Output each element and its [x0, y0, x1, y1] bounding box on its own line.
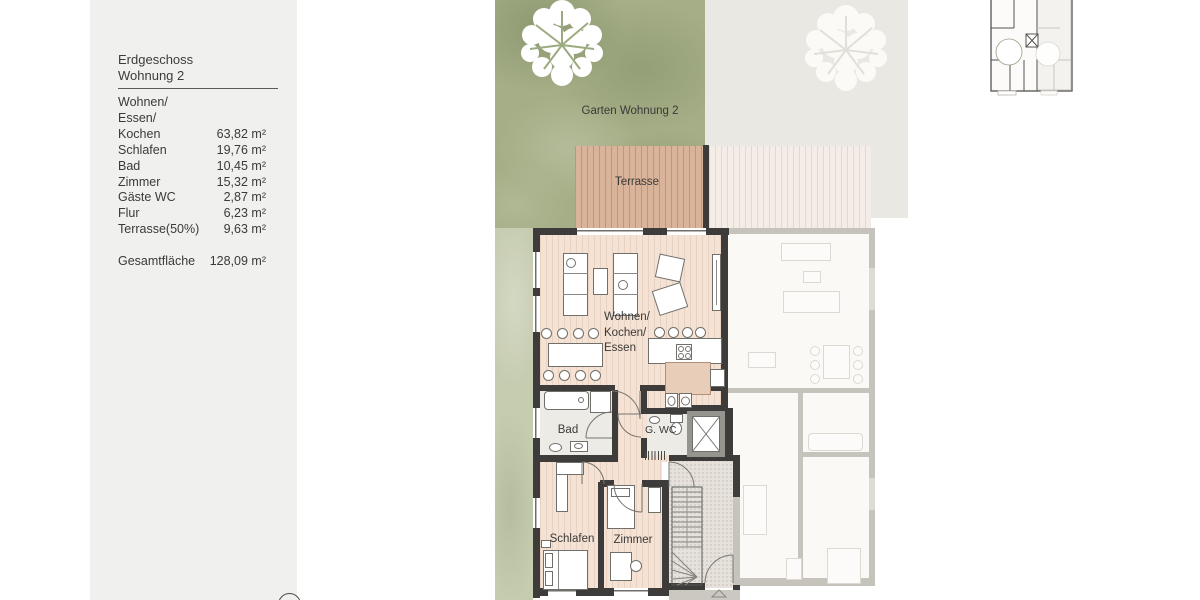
living-room-label: Wohnen/ Kochen/ Essen — [604, 310, 650, 357]
building-overview-minimap — [986, 0, 1078, 97]
schlafen-label: Schlafen — [542, 533, 602, 545]
floorplan-page: Erdgeschoss Wohnung 2 Wohnen/ Essen/ Koc… — [0, 0, 1200, 600]
guest-wc-label: G. WC — [645, 424, 677, 436]
zimmer-label: Zimmer — [603, 534, 663, 546]
bathroom-label: Bad — [550, 424, 586, 436]
